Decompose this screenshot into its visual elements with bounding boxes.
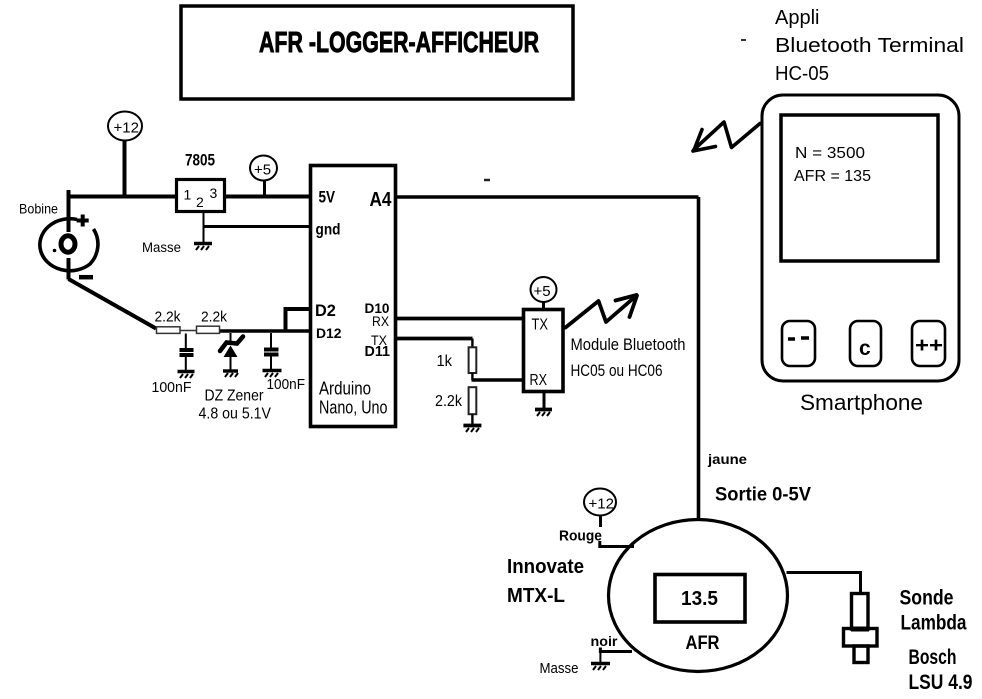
svg-text:3: 3 — [210, 185, 218, 201]
svg-text:4.8 ou 5.1V: 4.8 ou 5.1V — [199, 406, 272, 423]
svg-text:100nF: 100nF — [267, 376, 306, 393]
svg-text:RX: RX — [372, 314, 389, 329]
svg-text:Sonde: Sonde — [900, 587, 954, 610]
svg-text:100nF: 100nF — [152, 379, 192, 396]
svg-text:gnd: gnd — [316, 222, 341, 239]
svg-text:DZ Zener: DZ Zener — [205, 388, 265, 405]
svg-text:Lambda: Lambda — [901, 612, 967, 635]
svg-text:Arduino: Arduino — [319, 379, 371, 399]
svg-text:2.2k: 2.2k — [201, 309, 227, 326]
svg-text:D12: D12 — [316, 325, 342, 341]
svg-text:Module Bluetooth: Module Bluetooth — [571, 335, 686, 354]
svg-text:5V: 5V — [319, 188, 336, 207]
svg-text:1k: 1k — [437, 353, 453, 370]
svg-text:Bobine: Bobine — [19, 201, 58, 217]
svg-text:13.5: 13.5 — [681, 588, 718, 610]
svg-text:TX: TX — [532, 317, 549, 334]
svg-text:noir: noir — [591, 633, 619, 649]
svg-text:MTX-L: MTX-L — [507, 585, 565, 607]
svg-text:N = 3500: N = 3500 — [795, 145, 865, 162]
svg-text:D11: D11 — [365, 344, 391, 360]
svg-text:A4: A4 — [370, 189, 393, 211]
svg-text:D2: D2 — [315, 301, 336, 320]
svg-text:AFR = 135: AFR = 135 — [794, 168, 871, 185]
svg-text:Nano, Uno: Nano, Uno — [319, 398, 388, 418]
svg-text:Innovate: Innovate — [507, 556, 584, 578]
svg-text:Masse: Masse — [540, 660, 579, 677]
svg-text:2: 2 — [196, 194, 204, 210]
svg-text:++: ++ — [915, 334, 943, 357]
svg-text:Rouge: Rouge — [559, 529, 602, 545]
svg-text:LSU 4.9: LSU 4.9 — [909, 671, 973, 694]
svg-text:Masse: Masse — [142, 239, 181, 255]
svg-text:+5: +5 — [254, 162, 271, 179]
svg-text:2.2k: 2.2k — [435, 393, 463, 410]
svg-text:HC-05: HC-05 — [775, 63, 829, 85]
svg-text:Sortie 0-5V: Sortie 0-5V — [715, 485, 811, 506]
svg-text:7805: 7805 — [185, 151, 215, 170]
svg-text:Smartphone: Smartphone — [800, 390, 923, 415]
svg-text:HC05 ou HC06: HC05 ou HC06 — [571, 361, 663, 380]
svg-text:RX: RX — [530, 372, 548, 389]
svg-text:+12: +12 — [114, 120, 139, 137]
svg-text:AFR: AFR — [686, 633, 720, 654]
svg-text:AFR -LOGGER-AFFICHEUR: AFR -LOGGER-AFFICHEUR — [259, 27, 539, 59]
svg-text:Appli: Appli — [775, 7, 819, 29]
svg-text:2.2k: 2.2k — [155, 309, 181, 326]
svg-text:1: 1 — [184, 187, 192, 203]
svg-text:Bluetooth Terminal: Bluetooth Terminal — [775, 35, 964, 57]
svg-text:jaune: jaune — [707, 451, 747, 467]
svg-text:c: c — [859, 337, 871, 360]
svg-text:+5: +5 — [534, 283, 551, 300]
svg-text:+12: +12 — [589, 496, 614, 513]
svg-text:Bosch: Bosch — [909, 646, 957, 669]
